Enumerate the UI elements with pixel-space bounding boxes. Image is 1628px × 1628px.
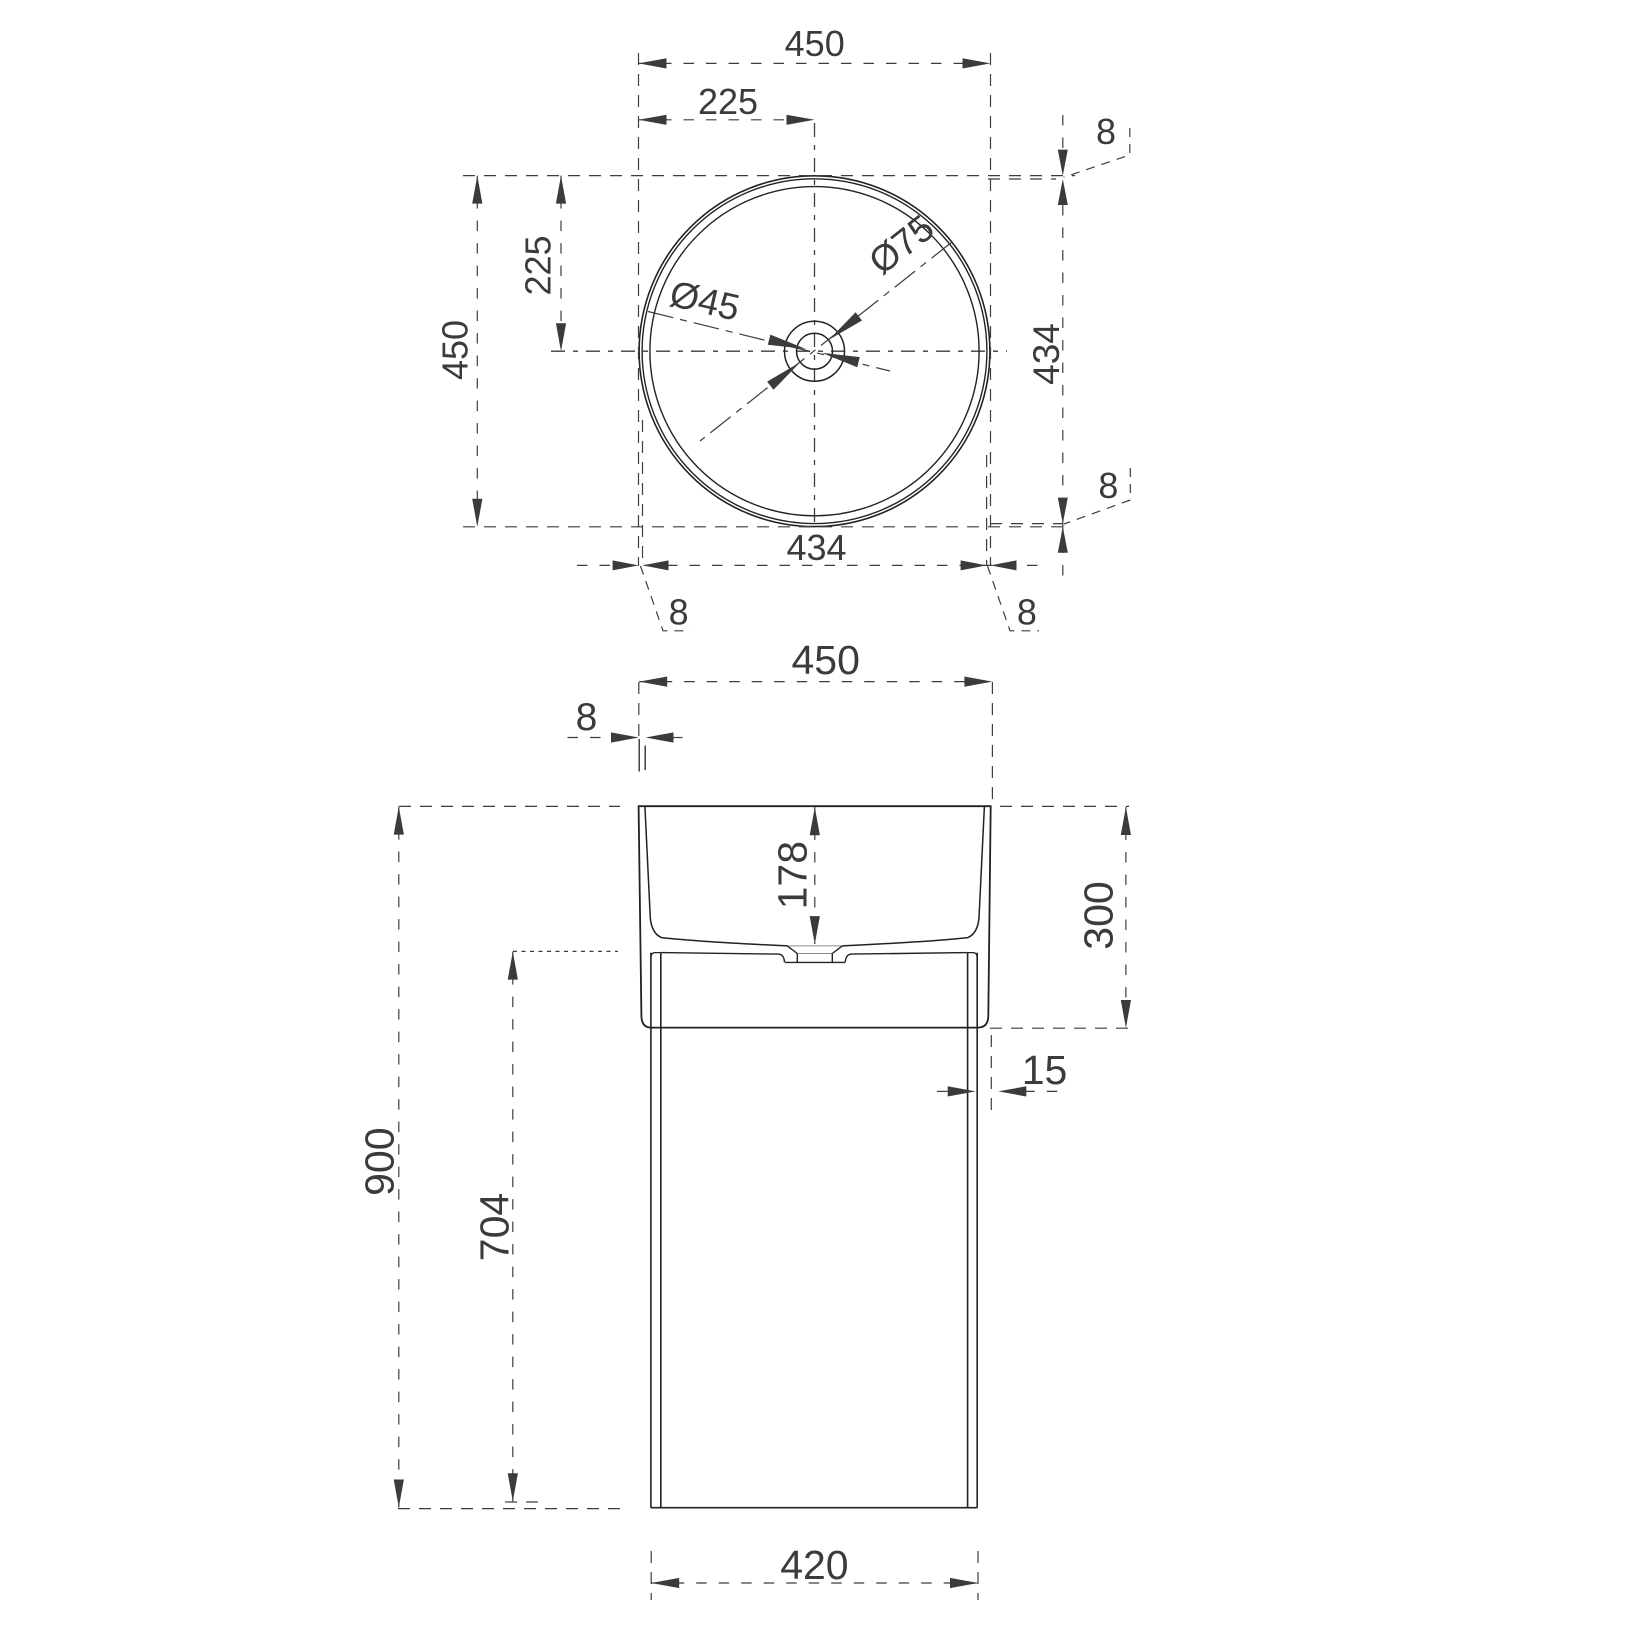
svg-text:8: 8 [1098, 465, 1118, 506]
svg-text:704: 704 [471, 1193, 517, 1261]
svg-text:15: 15 [1022, 1047, 1068, 1093]
svg-text:450: 450 [791, 637, 859, 683]
svg-text:8: 8 [1017, 591, 1037, 632]
svg-text:8: 8 [669, 591, 689, 632]
svg-text:900: 900 [357, 1127, 403, 1195]
svg-text:8: 8 [576, 696, 598, 739]
svg-text:450: 450 [785, 23, 845, 64]
svg-text:225: 225 [698, 81, 758, 122]
svg-text:434: 434 [786, 527, 846, 568]
svg-text:178: 178 [770, 841, 816, 909]
svg-text:300: 300 [1075, 881, 1121, 949]
svg-text:434: 434 [1026, 323, 1067, 385]
svg-text:225: 225 [517, 235, 558, 295]
svg-text:8: 8 [1096, 111, 1116, 152]
svg-text:420: 420 [780, 1542, 848, 1588]
svg-text:450: 450 [435, 320, 476, 380]
